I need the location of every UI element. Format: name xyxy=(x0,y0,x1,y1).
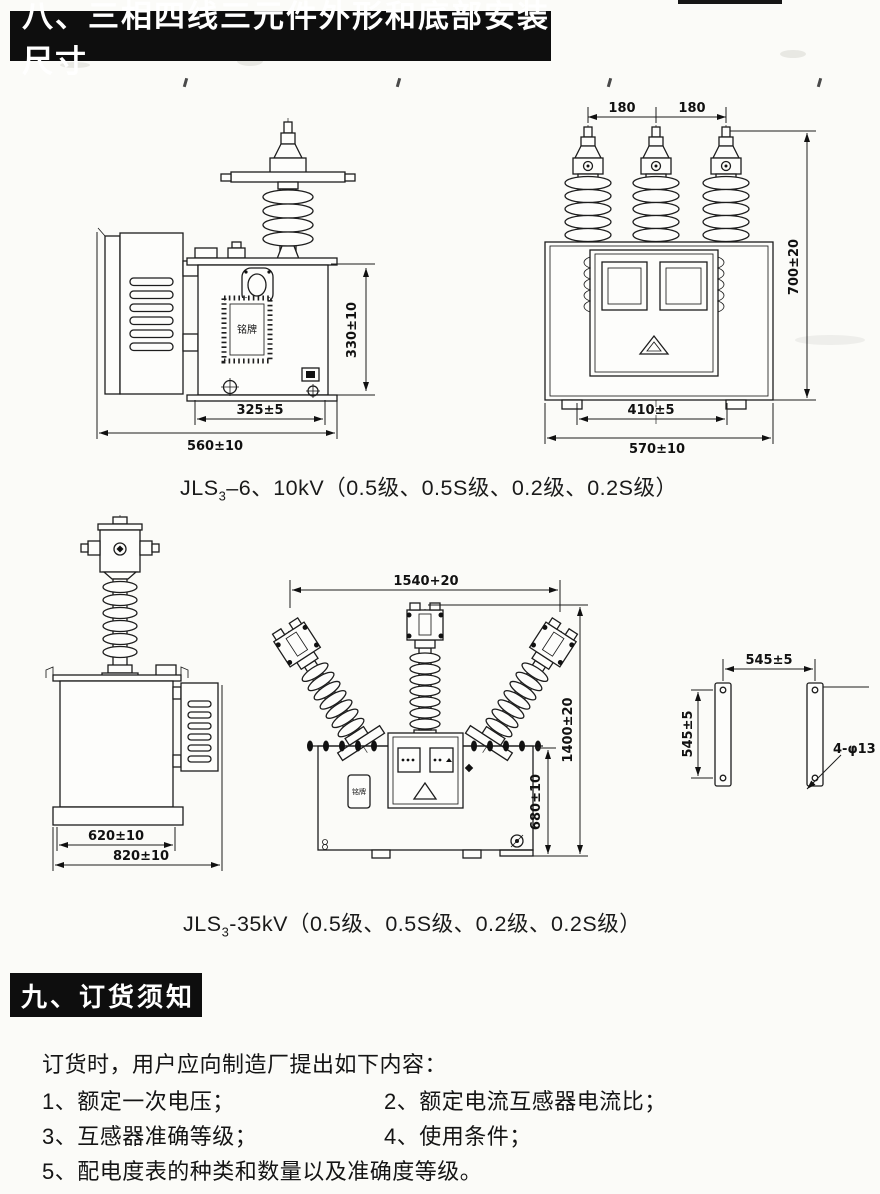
dim-330: 330±10 xyxy=(345,302,360,358)
figure2-mounting-detail-drawing: 545±5 545±5 4-φ13 xyxy=(655,625,880,840)
bushing-right xyxy=(703,108,749,245)
dim-545-vertical: 545±5 xyxy=(681,710,696,757)
order-intro: 订货时，用户应向制造厂提出如下内容： xyxy=(42,1047,447,1079)
dim-560: 560±10 xyxy=(187,439,243,454)
catalog-page: 八、三相四线三元件外形和底部安装尺寸 xyxy=(0,0,880,1194)
order-item-3: 3、互感器准确等级； xyxy=(42,1119,257,1151)
scan-artifact xyxy=(607,78,612,87)
order-item-2: 2、额定电流互感器电流比； xyxy=(384,1084,667,1116)
figure2-front-view-drawing: 铭牌 1540+20 1400±20 680±10 xyxy=(278,562,603,897)
bushing-left xyxy=(565,108,611,245)
dim-700: 700±20 xyxy=(787,239,802,295)
section-9-title-bar: 九、订货须知 xyxy=(10,973,202,1017)
dim-4-phi13: 4-φ13 xyxy=(833,742,876,757)
bushing xyxy=(81,517,159,673)
dim-180-left: 180 xyxy=(608,101,635,116)
caption-prefix: JLS xyxy=(183,912,222,936)
bushing-middle xyxy=(633,108,679,245)
radiator xyxy=(173,683,218,771)
figure2-caption: JLS3-35kV（0.5级、0.5S级、0.2级、0.2S级） xyxy=(183,907,641,939)
dim-1540: 1540+20 xyxy=(393,574,458,589)
caption-prefix: JLS xyxy=(180,476,219,500)
dim-570: 570±10 xyxy=(629,442,685,457)
scan-artifact xyxy=(780,50,806,58)
mount-rails xyxy=(715,683,823,786)
figure2-side-view-drawing: 620±10 820±10 xyxy=(38,515,238,880)
dim-620: 620±10 xyxy=(88,829,144,844)
dim-325: 325±5 xyxy=(236,403,283,418)
section-8-title: 八、三相四线三元件外形和底部安装尺寸 xyxy=(22,0,551,81)
tank xyxy=(545,242,773,409)
radiator xyxy=(98,228,198,394)
dim-680: 680±10 xyxy=(529,774,544,830)
dim-410: 410±5 xyxy=(627,403,674,418)
caption-rest: -35kV（0.5级、0.5S级、0.2级、0.2S级） xyxy=(229,912,641,936)
section-9-title: 九、订货须知 xyxy=(21,977,195,1014)
tank xyxy=(46,665,188,825)
scan-artifact xyxy=(678,0,782,4)
dim-1400: 1400±20 xyxy=(561,697,576,762)
order-item-5: 5、配电度表的种类和数量以及准确度等级。 xyxy=(42,1154,482,1186)
figure1-front-view-drawing: 180 180 700±20 410±5 570±10 xyxy=(520,95,830,455)
order-item-4: 4、使用条件； xyxy=(384,1119,532,1151)
scan-artifact xyxy=(817,78,822,87)
caption-rest: –6、10kV（0.5级、0.5S级、0.2级、0.2S级） xyxy=(226,476,677,500)
section-8-title-bar: 八、三相四线三元件外形和底部安装尺寸 xyxy=(10,11,551,61)
dim-180-right: 180 xyxy=(678,101,705,116)
nameplate-text: 铭牌 xyxy=(352,787,366,796)
figure1-caption: JLS3–6、10kV（0.5级、0.5S级、0.2级、0.2S级） xyxy=(180,471,677,503)
order-item-1: 1、额定一次电压； xyxy=(42,1084,235,1116)
dim-820: 820±10 xyxy=(113,849,169,864)
bushing-middle xyxy=(400,603,450,754)
figure1-side-view-drawing: 铭牌 330±10 325±5 560±10 xyxy=(85,112,385,457)
tank: 铭牌 xyxy=(187,242,337,401)
dimensions: 545±5 545±5 4-φ13 xyxy=(681,653,876,789)
nameplate-text: 铭牌 xyxy=(237,323,257,336)
dim-545-horizontal: 545±5 xyxy=(745,653,792,668)
